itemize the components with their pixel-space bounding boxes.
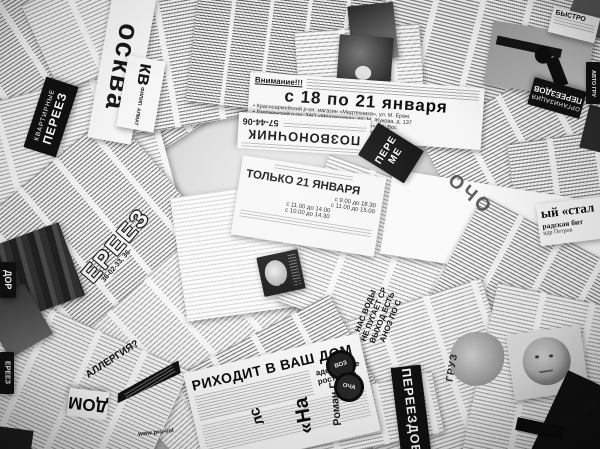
avto-gru-text: АВТО ГРУ bbox=[590, 70, 596, 97]
dom-text: ДОМ bbox=[67, 392, 109, 417]
kv-sub2: АЛМАТ bbox=[133, 107, 142, 126]
dom-label: ДОМ bbox=[66, 388, 109, 421]
pozvonochnik-phone: 57-44-06 bbox=[242, 116, 279, 128]
newspaper-collage-photo: осква кв ФИЛИП АЛМАТ Внимание!!! с 18 по… bbox=[0, 0, 600, 449]
kv-big: кв bbox=[131, 61, 158, 87]
stal-headline-scrap: ый «стал радская бит ндр Петров bbox=[536, 196, 600, 246]
avto-gru-label: АВТО ГРУ bbox=[586, 62, 600, 104]
ereez-label: ЕРЕЕЗ bbox=[0, 352, 14, 394]
pereezdov-text: ПЕРЕЕЗДОВ bbox=[399, 367, 423, 449]
kv-sub1: ФИЛИП bbox=[136, 87, 145, 106]
stamp-ocha-text: ОЧА bbox=[342, 383, 356, 392]
white-cup-shape bbox=[355, 65, 372, 80]
dor-label: ДОР bbox=[0, 262, 16, 298]
dor-text: ДОР bbox=[3, 270, 13, 289]
ereez-text: ЕРЕЕЗ bbox=[4, 361, 11, 384]
stamp-voz-text: ВОЗ bbox=[334, 360, 348, 370]
gun-barrel-shape bbox=[496, 36, 562, 59]
